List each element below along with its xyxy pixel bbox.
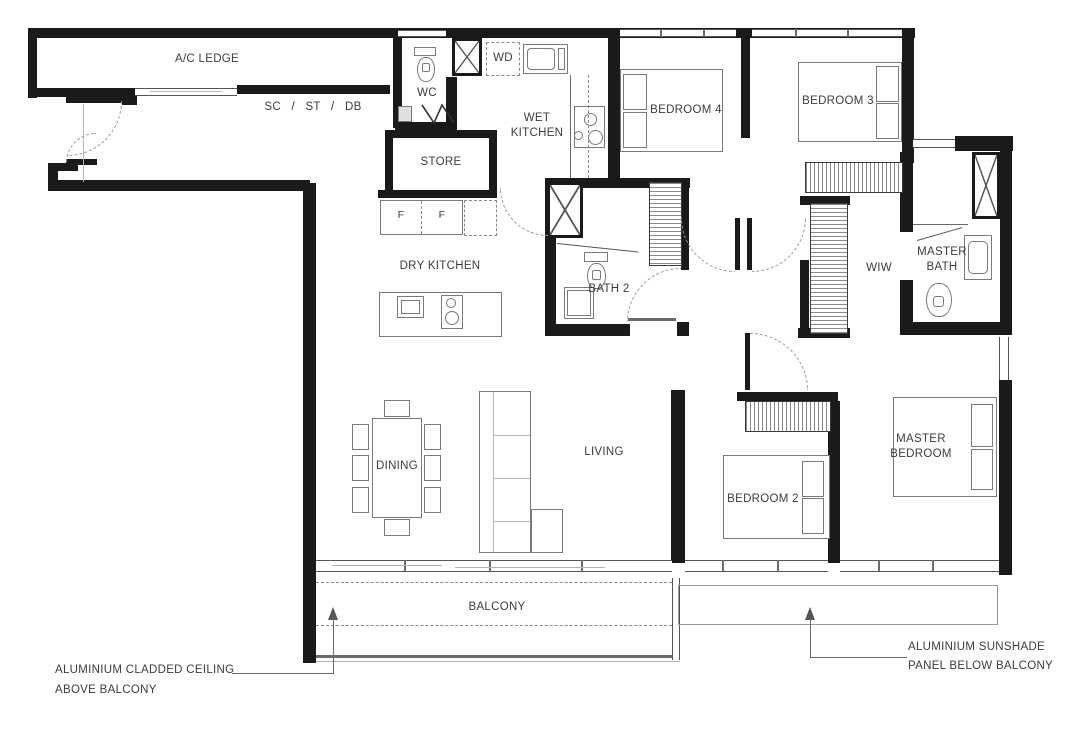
toilet-flush	[422, 63, 430, 72]
leader-line	[810, 657, 907, 658]
balcony-dashed-line	[316, 582, 672, 583]
toilet-tank	[584, 252, 608, 262]
floor-plan-canvas: A/C LEDGE SC / ST / DB WC WD STORE WET K…	[0, 0, 1080, 744]
wall	[677, 322, 689, 336]
pillow	[802, 498, 824, 534]
kitchen-sink-drainer	[558, 48, 565, 70]
door-swing-arc	[681, 218, 735, 272]
window-mullion	[722, 560, 724, 572]
window-inner-line	[150, 91, 222, 92]
window-mullion	[703, 29, 705, 37]
wc-floor-tray	[398, 106, 412, 122]
door-leaf	[735, 218, 740, 270]
shaft-x-icon	[452, 38, 482, 76]
wall	[955, 136, 1013, 151]
pillow	[876, 66, 899, 102]
wall	[608, 28, 620, 188]
door-swing-arc	[627, 268, 681, 322]
window-master	[840, 560, 999, 572]
wall	[28, 88, 135, 97]
window-band-bedrooms	[620, 29, 902, 37]
wall	[900, 280, 913, 327]
foyer-edge-line	[83, 104, 84, 182]
wall	[385, 130, 497, 138]
room-label-wc: WC	[417, 86, 437, 101]
room-label-dining: DINING	[376, 459, 418, 474]
room-label-bedroom3: BEDROOM 3	[802, 94, 874, 109]
wardrobe-wiw	[810, 203, 848, 334]
annotation-sunshade-line1: ALUMINIUM SUNSHADE	[908, 640, 1045, 655]
window-mullion	[795, 29, 797, 37]
wall	[741, 38, 750, 138]
shaft-x-icon	[972, 152, 1000, 219]
pillow	[971, 449, 993, 490]
wall	[489, 130, 497, 198]
shower-partition	[913, 224, 968, 225]
door-swing-arc	[500, 188, 548, 236]
room-label-master-bedroom: MASTER BEDROOM	[875, 432, 967, 462]
fridge-divider	[421, 201, 422, 234]
sofa-seat-line	[493, 521, 530, 522]
island-sink-basin	[401, 300, 420, 314]
hob-burner	[588, 130, 603, 145]
leader-line	[232, 673, 334, 674]
pillow	[623, 112, 647, 148]
sliding-panel-line	[332, 565, 442, 566]
window-ac-ledge	[135, 88, 237, 96]
room-label-living: LIVING	[584, 445, 624, 460]
wardrobe-bedroom3	[805, 162, 903, 193]
wall	[737, 392, 838, 401]
sliding-panel-line	[455, 567, 605, 568]
room-label-dry-kitchen: DRY KITCHEN	[400, 259, 481, 274]
window-wc	[398, 30, 446, 37]
room-label-bath2: BATH 2	[588, 282, 629, 297]
wall-pier	[736, 28, 752, 38]
toilet-flush	[933, 296, 944, 307]
sofa-back-line	[493, 392, 494, 552]
window-right	[999, 337, 1009, 380]
room-label-bedroom2: BEDROOM 2	[727, 492, 799, 507]
pillow	[876, 103, 899, 139]
toilet-flush	[592, 270, 601, 280]
pillow	[802, 461, 824, 497]
balcony-dashed-line	[316, 625, 672, 626]
wall	[900, 322, 1012, 335]
annotation-ceiling-line1: ALUMINIUM CLADDED CEILING	[55, 663, 234, 678]
window-mullion	[489, 560, 491, 572]
leader-line	[810, 619, 811, 658]
label-fridge: F	[439, 209, 446, 223]
island-burner	[445, 311, 459, 325]
appliance-space	[464, 200, 497, 236]
window-mullion	[847, 29, 849, 37]
toilet-tank	[414, 47, 436, 56]
door-swing-arc	[750, 333, 808, 390]
dining-chair	[352, 487, 369, 513]
dining-chair	[424, 487, 441, 513]
dining-chair	[424, 455, 441, 481]
wall	[999, 380, 1012, 575]
room-label-balcony: BALCONY	[468, 600, 525, 615]
room-label-closets: SC / ST / DB	[264, 100, 361, 115]
hob-burner	[584, 113, 597, 126]
folding-door-icon	[421, 102, 455, 126]
sofa-chaise	[531, 509, 563, 553]
window-mullion	[404, 560, 406, 572]
pillow	[971, 404, 993, 447]
sofa-seat-line	[493, 435, 530, 436]
wardrobe-bedroom4	[649, 182, 682, 266]
wall	[303, 183, 316, 663]
sofa	[479, 391, 531, 553]
wall	[385, 130, 393, 198]
annotation-sunshade-line2: PANEL BELOW BALCONY	[908, 659, 1053, 674]
wall	[237, 85, 390, 94]
sliding-door-living	[316, 560, 672, 572]
wall	[1000, 151, 1012, 335]
wall	[378, 190, 497, 198]
balcony-parapet	[316, 655, 680, 658]
sunshade-panel	[678, 585, 998, 625]
dining-chair	[352, 424, 369, 450]
wall	[48, 180, 310, 191]
pillow	[623, 74, 647, 110]
label-fridge: F	[398, 209, 405, 223]
window-mullion	[932, 560, 934, 572]
room-label-master-bath: MASTER BATH	[911, 245, 973, 275]
wall	[48, 163, 58, 185]
dining-chair	[384, 400, 410, 417]
wall	[545, 324, 630, 336]
wardrobe-bedroom2	[745, 401, 831, 432]
shower-tray-inner	[567, 290, 591, 316]
hob-burner	[574, 131, 583, 140]
pivot-door-leaf	[917, 227, 962, 241]
balcony-parapet-line	[316, 661, 680, 662]
window-bedroom2	[685, 560, 828, 572]
room-label-ac-ledge: A/C LEDGE	[175, 52, 239, 67]
window-mullion	[777, 560, 779, 572]
wall	[671, 390, 685, 563]
room-label-store: STORE	[421, 155, 462, 170]
room-label-wiw: WIW	[866, 261, 892, 276]
dining-chair	[384, 519, 410, 536]
room-label-wd: WD	[493, 51, 513, 66]
window-mullion	[581, 560, 583, 572]
room-label-wet-kitchen: WET KITCHEN	[502, 111, 572, 141]
island-burner	[446, 298, 456, 308]
annotation-ceiling-line2: ABOVE BALCONY	[55, 683, 157, 698]
window-mullion	[878, 560, 880, 572]
window-mullion	[660, 29, 662, 37]
shaft-x-icon	[547, 182, 583, 238]
window-wiw	[913, 139, 955, 148]
wall	[800, 260, 809, 328]
room-label-bedroom4: BEDROOM 4	[650, 103, 722, 118]
leader-line	[333, 619, 334, 674]
kitchen-sink	[527, 48, 555, 70]
counter-dashed-edge	[588, 75, 589, 178]
dining-chair	[424, 424, 441, 450]
door-swing-arc	[752, 218, 806, 272]
sofa-seat-line	[493, 478, 530, 479]
dining-chair	[352, 455, 369, 481]
